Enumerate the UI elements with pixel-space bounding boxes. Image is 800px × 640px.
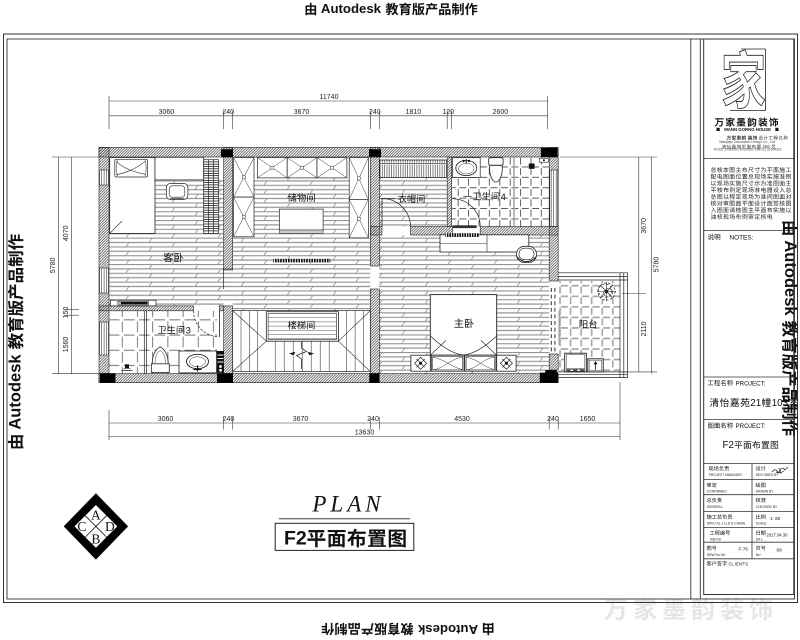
svg-text:4: 4 xyxy=(501,191,506,202)
svg-text:PROJECT MANAGER: PROJECT MANAGER xyxy=(709,473,743,477)
svg-text:SPEC AL 1 LLD N CHMAL: SPEC AL 1 LLD N CHMAL xyxy=(707,522,746,526)
svg-text:F-76: F-76 xyxy=(739,547,749,552)
svg-text:120: 120 xyxy=(442,109,454,116)
svg-text:3060: 3060 xyxy=(158,416,174,423)
svg-text:2017.04.30: 2017.04.30 xyxy=(767,533,789,538)
svg-text:DA L: DA L xyxy=(756,538,763,542)
svg-text:21: 21 xyxy=(750,398,761,409)
svg-text:Wanjiayu Decoration Design Co.: Wanjiayu Decoration Design Co., Ltd. xyxy=(719,140,775,144)
svg-text:B: B xyxy=(91,531,100,546)
svg-text:Tel:021 87654321 87654322 Fa: Tel:021 87654321 87654322 Fax:021 876543… xyxy=(714,147,782,151)
svg-text:A: A xyxy=(91,507,101,522)
svg-text:2110: 2110 xyxy=(641,321,648,336)
svg-text:240: 240 xyxy=(547,416,559,423)
svg-text:3670: 3670 xyxy=(293,416,309,423)
svg-text:1: 80: 1: 80 xyxy=(770,516,781,521)
svg-text:5780: 5780 xyxy=(50,257,57,273)
svg-text:NU: NU xyxy=(756,553,761,557)
svg-text:1650: 1650 xyxy=(580,416,596,423)
svg-text:240: 240 xyxy=(222,109,234,116)
svg-text:F2: F2 xyxy=(284,527,307,549)
svg-text:5780: 5780 xyxy=(654,257,661,273)
svg-text:DRW No NU: DRW No NU xyxy=(707,553,726,557)
svg-text:DRAWN BY: DRAWN BY xyxy=(756,490,774,494)
svg-text:3670: 3670 xyxy=(641,218,648,234)
svg-text:1810: 1810 xyxy=(406,109,422,116)
svg-text:CL IENT'S: CL IENT'S xyxy=(729,562,749,567)
svg-text:240: 240 xyxy=(367,416,379,423)
svg-text:11740: 11740 xyxy=(320,94,339,101)
svg-text:C: C xyxy=(77,519,86,534)
svg-text:PROJECT:: PROJECT: xyxy=(736,380,766,387)
svg-text:3670: 3670 xyxy=(294,109,310,116)
svg-text:4530: 4530 xyxy=(454,416,470,423)
svg-text:103: 103 xyxy=(772,398,789,409)
svg-text:SCALE: SCALE xyxy=(756,522,768,526)
svg-text:GENERAL: GENERAL xyxy=(707,505,723,509)
svg-text:4070: 4070 xyxy=(63,225,70,241)
svg-text:WANN GORNG HOUSE: WANN GORNG HOUSE xyxy=(724,127,771,132)
svg-text:Autodesk: Autodesk xyxy=(321,1,382,16)
svg-text:150: 150 xyxy=(63,306,70,318)
svg-text:NOTES:: NOTES: xyxy=(730,234,754,241)
svg-text:J0B NU: J0B NU xyxy=(710,538,722,542)
svg-text:Autodesk: Autodesk xyxy=(417,622,478,637)
svg-text:13630: 13630 xyxy=(355,430,375,437)
svg-text:PLAN: PLAN xyxy=(311,492,384,517)
svg-text:D: D xyxy=(105,519,115,534)
svg-text:CONFIRMED: CONFIRMED xyxy=(707,490,728,494)
svg-text:Autodesk: Autodesk xyxy=(7,354,25,430)
svg-text:1560: 1560 xyxy=(63,337,70,353)
svg-text:CHECKED BY: CHECKED BY xyxy=(756,505,778,509)
svg-text:240: 240 xyxy=(369,109,381,116)
svg-text:3: 3 xyxy=(186,325,191,336)
svg-text:DES GNED BY: DES GNED BY xyxy=(756,473,779,477)
svg-text:F2: F2 xyxy=(723,440,734,451)
svg-text:PROJECT:: PROJECT: xyxy=(736,423,766,430)
svg-text:240: 240 xyxy=(223,416,235,423)
svg-text:Autodesk: Autodesk xyxy=(781,240,799,316)
svg-text:2600: 2600 xyxy=(493,109,509,116)
svg-text:3060: 3060 xyxy=(159,109,175,116)
svg-text:09: 09 xyxy=(777,548,783,554)
